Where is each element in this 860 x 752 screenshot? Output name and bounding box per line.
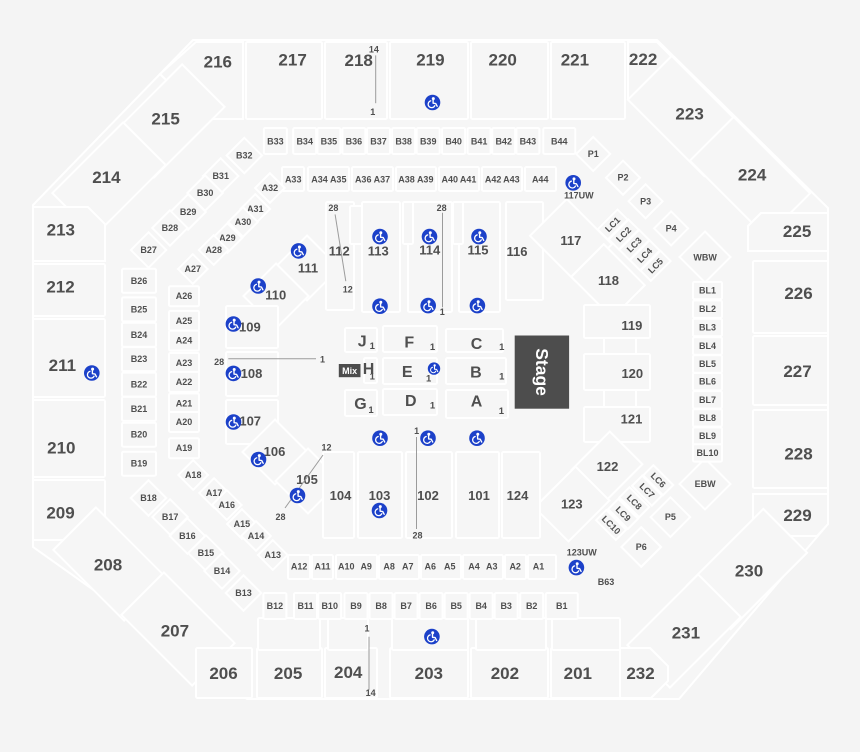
svg-text:B13: B13: [235, 588, 252, 598]
svg-text:BL4: BL4: [699, 341, 716, 351]
svg-text:BL1: BL1: [699, 286, 716, 296]
svg-text:A4: A4: [468, 562, 480, 572]
svg-text:A21: A21: [176, 399, 193, 409]
svg-text:B17: B17: [162, 512, 179, 522]
svg-text:B15: B15: [198, 548, 215, 558]
svg-text:220: 220: [489, 50, 517, 69]
svg-text:P4: P4: [666, 223, 677, 233]
svg-text:1: 1: [364, 624, 369, 634]
svg-text:115: 115: [468, 243, 489, 258]
svg-text:A25: A25: [176, 316, 193, 326]
svg-text:A9: A9: [360, 562, 372, 572]
svg-text:A10: A10: [338, 562, 355, 572]
svg-text:B27: B27: [140, 245, 157, 255]
svg-text:B2: B2: [526, 601, 538, 611]
svg-text:1: 1: [440, 307, 445, 317]
svg-text:204: 204: [334, 663, 363, 682]
svg-text:B5: B5: [450, 601, 462, 611]
svg-text:B31: B31: [212, 171, 229, 181]
svg-text:A: A: [471, 393, 483, 410]
svg-text:A19: A19: [176, 443, 193, 453]
svg-text:209: 209: [46, 504, 74, 523]
svg-text:B25: B25: [131, 304, 148, 314]
svg-text:B1: B1: [556, 601, 568, 611]
svg-text:B33: B33: [267, 136, 284, 146]
svg-text:110: 110: [265, 288, 286, 303]
svg-text:B35: B35: [321, 136, 338, 146]
svg-text:227: 227: [783, 362, 811, 381]
svg-text:28: 28: [214, 357, 224, 367]
svg-text:A22: A22: [176, 377, 193, 387]
svg-text:214: 214: [92, 168, 121, 187]
svg-text:Mix: Mix: [342, 366, 357, 376]
svg-text:B23: B23: [131, 354, 148, 364]
svg-text:1: 1: [370, 107, 375, 117]
svg-text:J: J: [358, 333, 367, 350]
svg-text:B20: B20: [131, 430, 148, 440]
svg-text:B18: B18: [140, 493, 157, 503]
svg-text:A39: A39: [417, 175, 434, 185]
svg-text:B41: B41: [471, 136, 488, 146]
svg-text:B37: B37: [370, 136, 387, 146]
svg-text:107: 107: [239, 413, 261, 428]
svg-text:A34: A34: [311, 175, 328, 185]
svg-text:B30: B30: [197, 188, 214, 198]
svg-text:112: 112: [329, 243, 350, 258]
svg-text:B40: B40: [445, 136, 462, 146]
svg-text:B34: B34: [296, 136, 313, 146]
svg-text:A16: A16: [219, 500, 236, 510]
svg-text:B19: B19: [131, 459, 148, 469]
svg-text:14: 14: [366, 688, 376, 698]
svg-text:B3: B3: [500, 601, 512, 611]
svg-text:210: 210: [47, 439, 75, 458]
svg-text:B16: B16: [179, 531, 196, 541]
svg-text:A26: A26: [176, 291, 193, 301]
svg-text:G: G: [354, 396, 366, 413]
svg-text:BL10: BL10: [696, 448, 718, 458]
svg-text:121: 121: [621, 412, 643, 427]
svg-text:B44: B44: [551, 136, 568, 146]
svg-text:A40: A40: [442, 175, 459, 185]
svg-text:28: 28: [412, 531, 422, 541]
svg-text:12: 12: [321, 443, 331, 453]
svg-text:A37: A37: [374, 175, 391, 185]
svg-text:B10: B10: [321, 601, 338, 611]
svg-text:A8: A8: [383, 562, 395, 572]
svg-text:222: 222: [629, 50, 657, 69]
svg-text:211: 211: [49, 356, 76, 375]
svg-text:B36: B36: [346, 136, 363, 146]
svg-text:B22: B22: [131, 380, 148, 390]
svg-text:B29: B29: [180, 207, 197, 217]
svg-text:203: 203: [415, 664, 443, 683]
svg-text:124: 124: [507, 488, 529, 503]
svg-text:1: 1: [430, 401, 436, 412]
svg-text:105: 105: [296, 472, 318, 487]
svg-text:103: 103: [369, 488, 391, 503]
svg-text:1: 1: [499, 372, 505, 383]
svg-text:A14: A14: [248, 531, 265, 541]
svg-text:A29: A29: [219, 233, 236, 243]
svg-text:218: 218: [345, 51, 373, 70]
svg-text:226: 226: [784, 284, 812, 303]
svg-text:223: 223: [675, 105, 703, 124]
svg-text:BL5: BL5: [699, 359, 716, 369]
svg-text:B7: B7: [400, 601, 412, 611]
svg-text:BL3: BL3: [699, 323, 716, 333]
svg-text:B6: B6: [425, 601, 437, 611]
svg-text:206: 206: [209, 664, 237, 683]
svg-text:207: 207: [161, 622, 189, 641]
svg-text:28: 28: [328, 203, 338, 213]
svg-text:BL8: BL8: [699, 413, 716, 423]
svg-text:1: 1: [370, 341, 376, 352]
svg-text:A41: A41: [460, 175, 477, 185]
svg-text:113: 113: [368, 244, 389, 259]
svg-text:WBW: WBW: [693, 252, 717, 262]
svg-text:A24: A24: [176, 336, 193, 346]
svg-text:A42: A42: [485, 175, 502, 185]
svg-text:119: 119: [621, 318, 642, 333]
svg-text:104: 104: [330, 488, 352, 503]
svg-text:1: 1: [414, 426, 419, 436]
svg-text:118: 118: [598, 273, 619, 288]
svg-text:A18: A18: [185, 470, 202, 480]
svg-text:1: 1: [320, 355, 325, 365]
svg-text:A13: A13: [265, 550, 282, 560]
svg-text:101: 101: [468, 488, 490, 503]
svg-text:BL6: BL6: [699, 377, 716, 387]
svg-text:P6: P6: [636, 542, 647, 552]
svg-text:B11: B11: [297, 601, 313, 611]
svg-text:208: 208: [94, 556, 122, 575]
svg-text:B39: B39: [420, 136, 437, 146]
svg-text:A35: A35: [330, 175, 347, 185]
svg-text:B9: B9: [350, 601, 362, 611]
svg-text:A28: A28: [205, 245, 222, 255]
svg-text:A43: A43: [503, 175, 520, 185]
svg-text:B24: B24: [131, 330, 148, 340]
svg-text:205: 205: [274, 664, 302, 683]
svg-text:201: 201: [564, 664, 592, 683]
svg-text:123UW: 123UW: [567, 548, 598, 558]
svg-text:229: 229: [783, 506, 811, 525]
svg-text:106: 106: [264, 444, 286, 459]
svg-text:12: 12: [343, 285, 353, 295]
svg-text:P5: P5: [665, 512, 676, 522]
svg-text:219: 219: [416, 50, 444, 69]
svg-text:A2: A2: [509, 562, 521, 572]
svg-text:228: 228: [784, 445, 812, 464]
svg-text:A5: A5: [444, 562, 456, 572]
svg-text:B8: B8: [375, 601, 387, 611]
svg-text:1: 1: [430, 342, 436, 353]
svg-text:A32: A32: [262, 183, 279, 193]
svg-text:225: 225: [783, 222, 811, 241]
svg-text:217: 217: [278, 50, 306, 69]
svg-text:221: 221: [561, 50, 589, 69]
svg-text:230: 230: [735, 562, 763, 581]
svg-text:A36: A36: [355, 175, 372, 185]
svg-text:108: 108: [241, 366, 263, 381]
svg-text:102: 102: [417, 488, 439, 503]
svg-text:BL9: BL9: [699, 431, 716, 441]
svg-text:B14: B14: [214, 566, 231, 576]
svg-text:EBW: EBW: [695, 479, 717, 489]
svg-text:B21: B21: [131, 404, 148, 414]
svg-text:A11: A11: [314, 562, 330, 572]
svg-text:BL7: BL7: [699, 395, 716, 405]
svg-text:BL2: BL2: [699, 304, 716, 314]
svg-text:A38: A38: [398, 175, 415, 185]
svg-text:216: 216: [204, 53, 232, 72]
svg-text:B28: B28: [162, 223, 179, 233]
svg-text:A44: A44: [532, 175, 549, 185]
svg-text:B: B: [470, 365, 482, 382]
svg-text:232: 232: [626, 664, 654, 683]
svg-text:C: C: [471, 336, 483, 353]
svg-text:109: 109: [239, 320, 261, 335]
svg-text:213: 213: [47, 221, 75, 240]
svg-text:1: 1: [499, 342, 505, 353]
svg-text:111: 111: [298, 261, 318, 276]
svg-text:224: 224: [738, 166, 767, 185]
svg-text:116: 116: [507, 244, 528, 259]
svg-text:B12: B12: [267, 601, 284, 611]
svg-text:B26: B26: [131, 276, 148, 286]
svg-text:B63: B63: [598, 577, 615, 587]
svg-text:A30: A30: [235, 217, 252, 227]
svg-text:28: 28: [275, 512, 285, 522]
svg-text:A6: A6: [425, 562, 437, 572]
svg-text:117UW: 117UW: [564, 190, 594, 200]
svg-text:P1: P1: [588, 149, 599, 159]
svg-text:A3: A3: [486, 562, 498, 572]
svg-text:A23: A23: [176, 358, 193, 368]
svg-text:P2: P2: [617, 173, 628, 183]
svg-text:A27: A27: [185, 264, 202, 274]
svg-text:B42: B42: [495, 136, 512, 146]
svg-text:202: 202: [491, 664, 519, 683]
svg-text:123: 123: [561, 497, 583, 512]
svg-text:1: 1: [368, 405, 374, 416]
svg-text:B43: B43: [520, 136, 537, 146]
svg-text:114: 114: [419, 243, 441, 258]
svg-text:215: 215: [151, 109, 179, 128]
svg-text:F: F: [404, 334, 414, 351]
svg-text:P3: P3: [640, 196, 651, 206]
svg-text:122: 122: [597, 459, 619, 474]
svg-text:28: 28: [437, 203, 447, 213]
svg-text:231: 231: [672, 624, 700, 643]
svg-text:B4: B4: [475, 601, 487, 611]
svg-text:120: 120: [621, 366, 643, 381]
svg-text:1: 1: [426, 373, 432, 384]
svg-text:A20: A20: [176, 417, 193, 427]
svg-text:B32: B32: [236, 151, 253, 161]
svg-text:117: 117: [560, 233, 581, 248]
svg-text:A12: A12: [291, 562, 308, 572]
svg-text:B38: B38: [395, 136, 412, 146]
svg-text:E: E: [402, 364, 413, 381]
svg-text:Stage: Stage: [532, 348, 552, 396]
svg-text:A33: A33: [285, 175, 302, 185]
svg-text:A1: A1: [533, 562, 545, 572]
svg-text:A15: A15: [234, 519, 251, 529]
svg-text:A7: A7: [402, 562, 414, 572]
svg-text:D: D: [405, 393, 417, 410]
svg-text:1: 1: [370, 372, 376, 383]
svg-text:212: 212: [46, 278, 74, 297]
svg-text:1: 1: [499, 406, 505, 417]
